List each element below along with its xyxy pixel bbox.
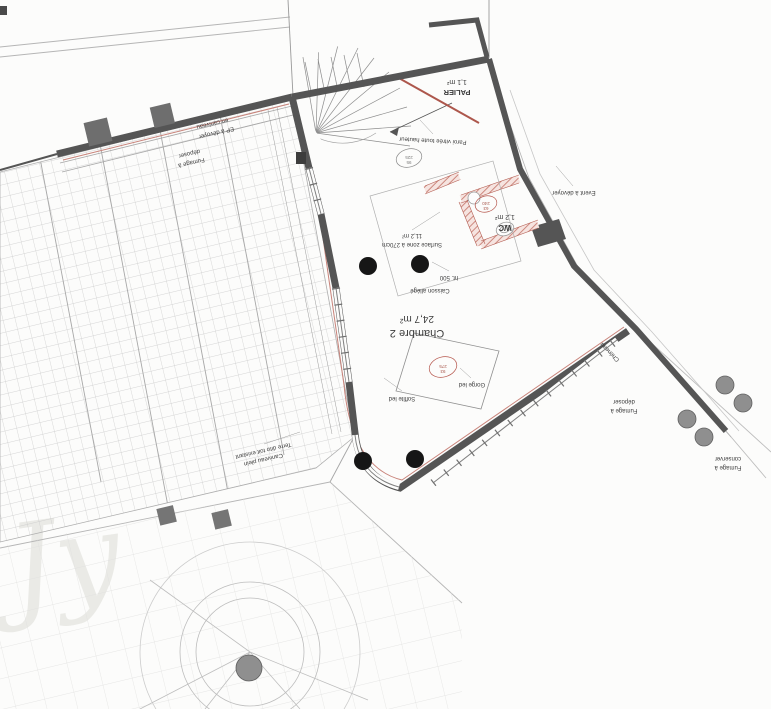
room-label-chambre2-name: Chambre 2 [390,327,444,339]
note-event: Event à dévoyer [552,189,595,195]
planter-circle [716,376,734,394]
plan-canvas: Jy [0,0,771,709]
tag-stair-l2: 225 [405,155,413,160]
note-soffite-led: Soffite led [389,395,416,401]
room-label-wc-name: WC [498,223,512,232]
wall-nib [296,152,306,164]
planter-circle [734,394,752,412]
room-label-palier-area: 1,1 m² [446,78,467,85]
structural-column [354,452,372,470]
note-gorge-led: Gorge led [459,381,485,387]
note-fumage-br-l1: Fumage à [714,464,742,470]
tag-wc-l2: 240 [482,201,490,206]
tag-room-l2: 275 [439,364,447,369]
note-fumage-right-l2: déposer [613,398,635,404]
structural-column [359,257,377,275]
note-fumage-right-l1: Fumage à [610,407,638,413]
room-label-chambre2-area: 24,7 m² [399,313,434,324]
note-fumage-br-l2: conserver [715,455,741,461]
note-caisson-l1: Caisson allégé [410,287,450,293]
paving-circle [236,655,262,681]
note-caisson-l2: ht. 500 [439,274,458,280]
washbasin-icon [468,192,480,204]
planter-circle [678,410,696,428]
structural-column [411,255,429,273]
scan-edge-mark [0,6,7,15]
structural-column [406,450,424,468]
room-label-palier-name: PALIER [443,88,471,97]
floor-plan-scan: Jy [0,0,771,709]
room-label-wc-area: 1,2 m² [494,213,515,220]
note-surface-zone-l2: 11,2 m² [402,232,422,238]
note-surface-zone-l1: Surface zone à 270cm [382,241,442,247]
planter-circle [695,428,713,446]
